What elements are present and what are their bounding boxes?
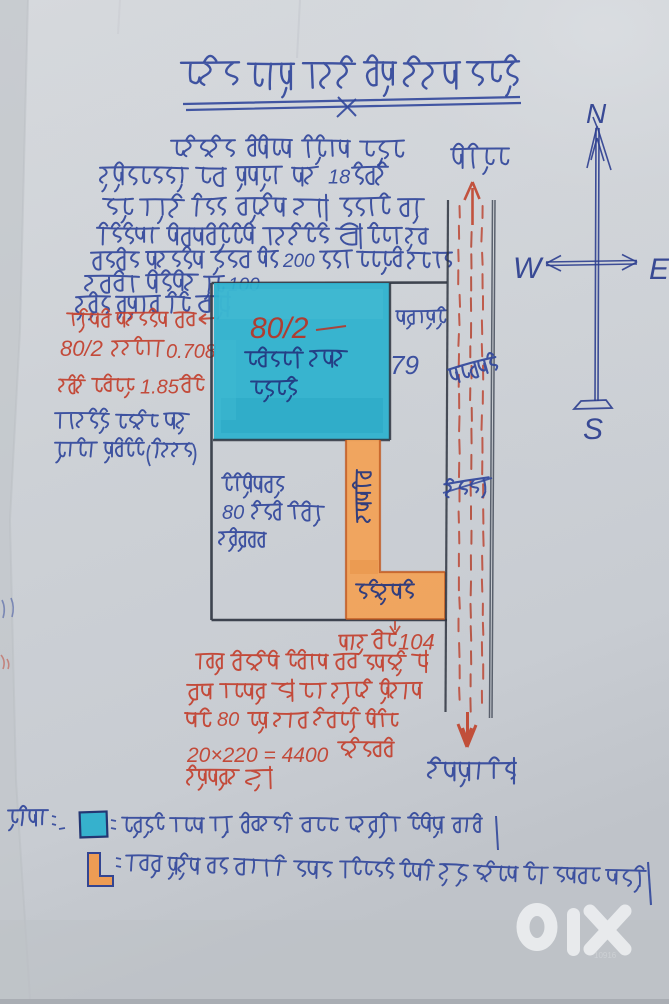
svg-text:10916: 10916 [594,951,617,960]
svg-text:S: S [583,413,603,446]
svg-text:80/2: 80/2 [60,336,103,361]
svg-text:104: 104 [398,629,435,654]
svg-text:1.85: 1.85 [140,376,180,398]
svg-text:18: 18 [328,167,350,189]
svg-text:80: 80 [222,502,244,524]
svg-text:W: W [513,252,544,285]
svg-text:80/2: 80/2 [250,312,309,345]
svg-text:20×220 = 4400: 20×220 = 4400 [186,744,329,767]
svg-text:E: E [649,253,669,286]
svg-text:0.708: 0.708 [166,341,216,363]
svg-text:200: 200 [282,251,315,272]
svg-text:80: 80 [217,709,239,731]
svg-text:79: 79 [390,350,419,380]
